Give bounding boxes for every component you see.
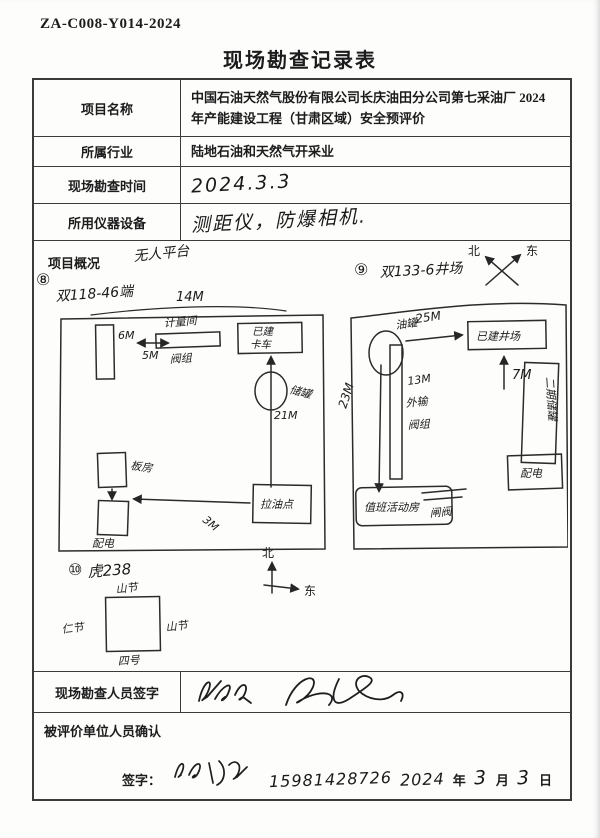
confirm-label: 被评价单位人员确认 [44,721,161,740]
table-row: 所用仪器设备 测距仪，防爆相机. [34,204,570,241]
site1-tank-dimension: 21M [274,409,298,422]
site1-cabin-label: 板房 [130,459,155,475]
day-label: 日 [539,770,552,789]
site2-25m-arrow [406,335,462,341]
month-label: 月 [496,770,509,789]
table-row: 现场勘查时间 2024.3.3 [34,167,570,204]
instruments-label: 所用仪器设备 [34,204,181,240]
site2-23m-arrow [379,365,381,491]
site2-valve-line [424,497,462,500]
site3-left-label: 仁节 [61,621,86,636]
confirmer-signature-scribble [169,755,261,789]
site2-valve-label: 闸阀 [429,505,454,520]
confirm-signature-line: 签字： 15981428726 2024 年 3 月 3 日 [122,755,552,789]
compass-east-label: 东 [304,584,316,598]
industry-value: 陆地石油和天然气开采业 [181,137,570,166]
site2-23m-dimension: 23M [336,381,357,410]
compass-north-label: 北 [468,244,480,258]
top-note-handwritten: 无人平台 [133,243,191,265]
project-name-label: 项目名称 [34,80,181,136]
survey-form-table: 项目名称 中国石油天然气股份有限公司长庆油田分公司第七采油厂 2024 年产能建… [32,78,572,801]
site1-tank-label: 储罐 [288,383,314,401]
site2-existing-pad-label: 已建井场 [476,330,521,343]
table-row: 项目名称 中国石油天然气股份有限公司长庆油田分公司第七采油厂 2024 年产能建… [34,80,570,137]
document-number: ZA-C008-Y014-2024 [40,16,181,33]
site1-gap-dimension: 5M [142,349,159,362]
site1-skid-bottom-label: 阀组 [169,351,193,366]
overview-label: 项目概况 [48,253,100,272]
project-name-value: 中国石油天然气股份有限公司长庆油田分公司第七采油厂 2024 年产能建设工程（甘… [181,80,570,136]
site1-existing-line2: 卡车 [250,339,272,351]
site2-number: ⑨ [354,260,368,279]
site2-7m-dimension: 7M [512,368,532,383]
site2-power-label: 配电 [520,467,543,480]
site3-bottom-label: 四号 [117,653,141,668]
site1-name-handwritten: 双118-46端 [55,283,136,305]
table-row: 现场勘查人员签字 [34,672,570,713]
site2-pipe-label: 外输 [405,395,430,410]
project-overview-cell: 项目概况 无人平台 ⑧ 双118-46端 ⑨ 双133-6井场 [34,241,570,672]
site1-top-dimension: 14M [176,290,204,305]
compass-icon: 北 东 [468,244,538,285]
site3-right-label: 山节 [165,619,190,634]
site1-bottom-arrow [134,499,250,503]
year-handwritten: 2024 [400,769,445,790]
scanned-form-page: ZA-C008-Y014-2024 现场勘查记录表 项目名称 中国石油天然气股份… [0,0,600,838]
site1-number: ⑧ [36,270,50,289]
site3-well-pad-square [106,597,161,652]
table-row: 所属行业 陆地石油和天然气开采业 [34,137,570,167]
site1-existing-line1: 已建 [252,326,274,338]
site1-meter-skid [156,332,220,348]
site1-power-label: 配电 [92,537,115,550]
surveyor-signature-scribble [191,673,491,711]
phone-handwritten: 15981428726 [269,768,393,791]
site2-pipe-label: 13M [407,372,433,388]
site1-dimension-line [91,307,286,315]
site1-skid-top-label: 计量间 [163,314,199,330]
instruments-handwritten: 测距仪，防爆相机. [190,202,367,243]
site3-name-handwritten: 虎238 [87,560,132,581]
compass-east-label: 东 [526,244,538,258]
site3-number: ⑩ [68,560,82,579]
sign-here-label: 签字： [122,770,161,789]
site2-pipe-label: 阀组 [407,417,431,432]
surveyor-signature-label: 现场勘查人员签字 [34,672,181,712]
site3-top-label: 山节 [115,581,140,596]
site2-valve-line [422,489,466,493]
site2-25m-dimension: 25M [414,308,442,326]
site1-oil-pickup-label: 拉油点 [260,498,295,511]
compass-north-label: 北 [262,546,274,560]
month-handwritten: 3 [473,767,488,790]
site2-phase2-label: 二期储罐 [543,376,559,423]
site1-tower-height: 6M [118,329,135,342]
form-title: 现场勘查记录表 [0,44,600,73]
confirm-cell: 被评价单位人员确认 签字： 15981428726 2024 年 3 月 3 日 [34,713,570,799]
industry-label: 所属行业 [34,137,181,166]
site2-tank [369,331,403,375]
site1-tower [96,325,115,379]
survey-time-label: 现场勘查时间 [34,167,181,203]
survey-time-handwritten: 2024.3.3 [190,167,292,204]
site1-power-box [97,500,128,535]
site1-boundary [59,315,325,551]
site2-duty-cabin-label: 值班活动房 [364,501,420,514]
day-handwritten: 3 [516,767,531,790]
compass-icon: 北 东 [262,546,316,598]
year-label: 年 [453,770,466,789]
site2-name-handwritten: 双133-6井场 [379,261,463,281]
site1-cabin-box [97,453,126,488]
hand-drawn-site-sketch: 无人平台 ⑧ 双118-46端 ⑨ 双133-6井场 北 东 [34,241,568,669]
site1-bottom-dimension: 3M [200,513,221,534]
